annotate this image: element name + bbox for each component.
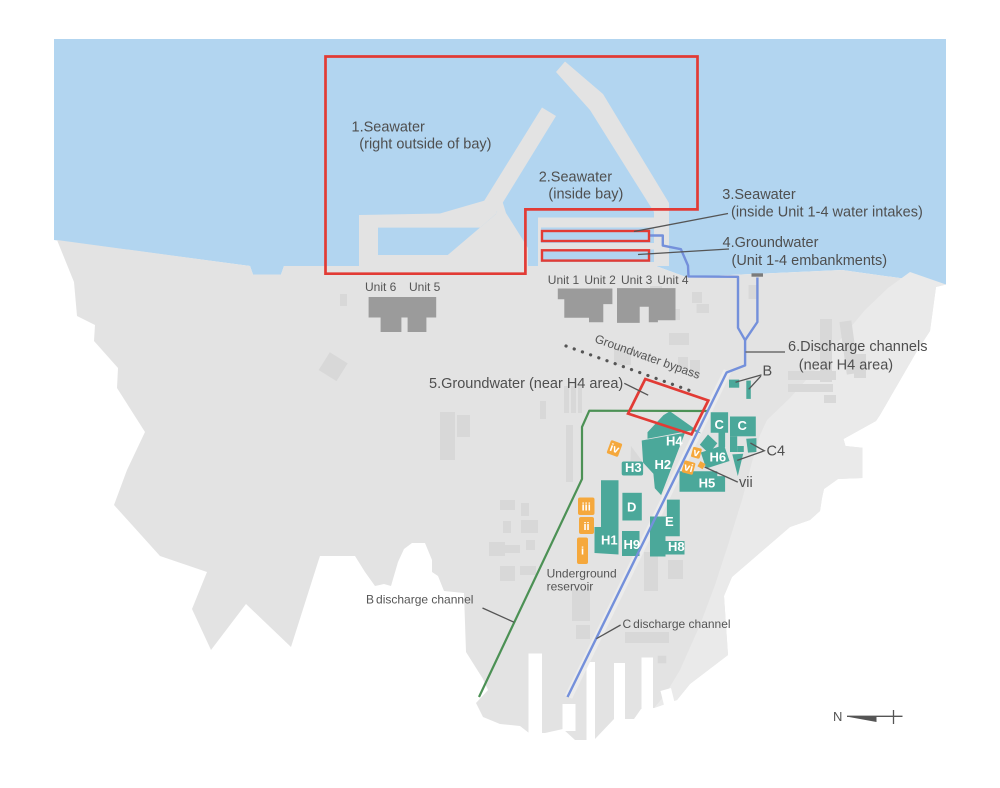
svg-text:1.Seawater: 1.Seawater [352,120,426,136]
svg-text:(near H4 area): (near H4 area) [799,358,893,374]
svg-text:ii: ii [583,521,589,533]
svg-text:B: B [763,364,773,380]
svg-text:E: E [665,514,674,529]
svg-text:Unit 6: Unit 6 [365,280,397,294]
svg-text:6.Discharge channels: 6.Discharge channels [788,339,927,355]
svg-text:2.Seawater: 2.Seawater [539,170,613,186]
svg-text:H3: H3 [625,460,642,475]
svg-text:Unit 2: Unit 2 [584,273,616,287]
svg-text:N: N [833,709,842,724]
svg-text:5.Groundwater (near H4 area): 5.Groundwater (near H4 area) [429,376,623,392]
svg-text:Unit 5: Unit 5 [409,280,441,294]
svg-text:H9: H9 [624,537,641,552]
svg-text:C: C [715,417,725,432]
svg-text:i: i [581,546,584,558]
svg-text:4.Groundwater: 4.Groundwater [723,235,819,251]
svg-text:H4: H4 [666,434,683,449]
svg-text:(inside bay): (inside bay) [548,187,623,203]
svg-text:(right outside of bay): (right outside of bay) [359,137,491,153]
svg-text:H6: H6 [710,450,727,465]
svg-text:C: C [738,418,748,433]
svg-text:H2: H2 [655,457,672,472]
svg-text:Unit 4: Unit 4 [657,273,689,287]
svg-text:Bdischarge channel: Bdischarge channel [366,593,473,607]
svg-text:C4: C4 [767,444,786,460]
svg-text:3.Seawater: 3.Seawater [722,187,796,203]
svg-text:reservoir: reservoir [547,580,594,594]
svg-text:vii: vii [739,475,753,491]
svg-text:H5: H5 [699,476,716,491]
svg-text:H1: H1 [601,533,618,548]
svg-text:(inside Unit 1-4 water intakes: (inside Unit 1-4 water intakes) [731,205,923,221]
svg-text:D: D [627,500,636,515]
svg-text:(Unit 1-4 embankments): (Unit 1-4 embankments) [732,253,888,269]
svg-text:Cdischarge channel: Cdischarge channel [623,617,731,631]
svg-text:Underground: Underground [547,567,617,581]
svg-text:Unit 1: Unit 1 [548,273,580,287]
svg-text:Unit 3: Unit 3 [621,273,653,287]
svg-text:iii: iii [582,502,591,514]
svg-text:H8: H8 [668,539,685,554]
